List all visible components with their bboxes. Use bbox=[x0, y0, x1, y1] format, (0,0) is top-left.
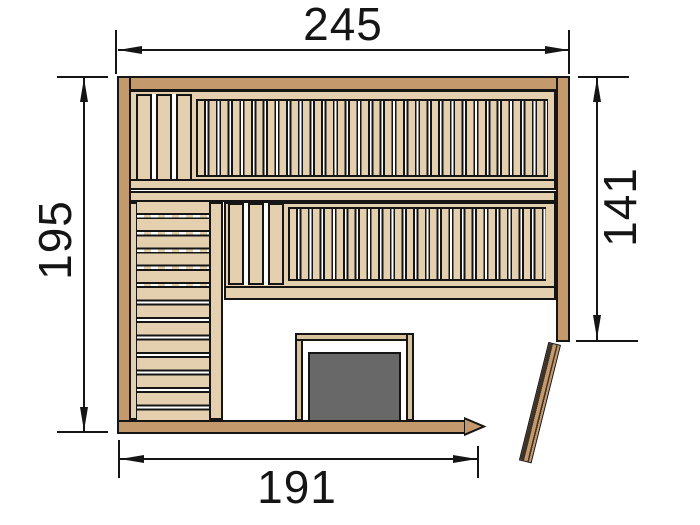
heater-guard-top bbox=[295, 333, 414, 341]
dim-top-label: 245 bbox=[243, 1, 443, 47]
headrest-slat bbox=[136, 94, 152, 182]
middle-bench-headrest bbox=[228, 203, 284, 285]
dim-bottom-arrow-left-icon bbox=[120, 455, 144, 463]
dim-left-arrow-up-icon bbox=[80, 78, 88, 102]
headrest-slat bbox=[248, 203, 264, 285]
wall-top bbox=[117, 76, 570, 91]
dim-left-arrow-down-icon bbox=[80, 407, 88, 431]
dim-right-arrow-down-icon bbox=[593, 315, 601, 339]
side-bench-lower-slats bbox=[137, 288, 210, 420]
heater-guard-left bbox=[295, 333, 303, 421]
heater bbox=[308, 352, 401, 422]
top-bench-front-edge bbox=[129, 179, 556, 190]
middle-bench-front-edge bbox=[224, 286, 556, 300]
dim-top-ext-left bbox=[115, 30, 117, 74]
wall-right bbox=[556, 76, 570, 342]
dim-right-tick-bottom bbox=[576, 340, 638, 342]
top-bench-slats bbox=[196, 99, 548, 177]
dim-top-arrow-left-icon bbox=[118, 46, 142, 54]
top-bench-headrest bbox=[136, 94, 192, 182]
headrest-slat bbox=[156, 94, 172, 182]
sauna-floor-plan: 245 195 141 191 bbox=[0, 0, 700, 525]
dim-right-arrow-up-icon bbox=[593, 78, 601, 102]
middle-bench-back-edge bbox=[129, 191, 556, 202]
wall-bottom bbox=[117, 420, 468, 434]
heater-guard-right bbox=[406, 333, 414, 421]
headrest-slat bbox=[268, 203, 284, 285]
side-bench-front-rail bbox=[209, 202, 223, 420]
dim-top-arrow-right-icon bbox=[545, 46, 569, 54]
wall-bottom-tip bbox=[464, 414, 488, 440]
dim-bottom-label: 191 bbox=[197, 464, 397, 510]
door bbox=[519, 342, 561, 464]
dim-right-label: 141 bbox=[597, 107, 643, 307]
headrest-slat bbox=[176, 94, 192, 182]
side-bench-upper-slats bbox=[137, 202, 210, 288]
middle-bench-slats bbox=[288, 207, 546, 281]
dim-bottom-line bbox=[120, 458, 478, 460]
dim-bottom-ext-right bbox=[477, 446, 479, 478]
dim-left-label: 195 bbox=[32, 140, 78, 340]
headrest-slat bbox=[228, 203, 244, 285]
dim-right-line bbox=[596, 78, 598, 341]
dim-right-tick-top bbox=[578, 76, 629, 78]
dim-bottom-arrow-right-icon bbox=[453, 455, 477, 463]
dim-top-line bbox=[118, 49, 569, 51]
dim-left-line bbox=[83, 78, 85, 432]
